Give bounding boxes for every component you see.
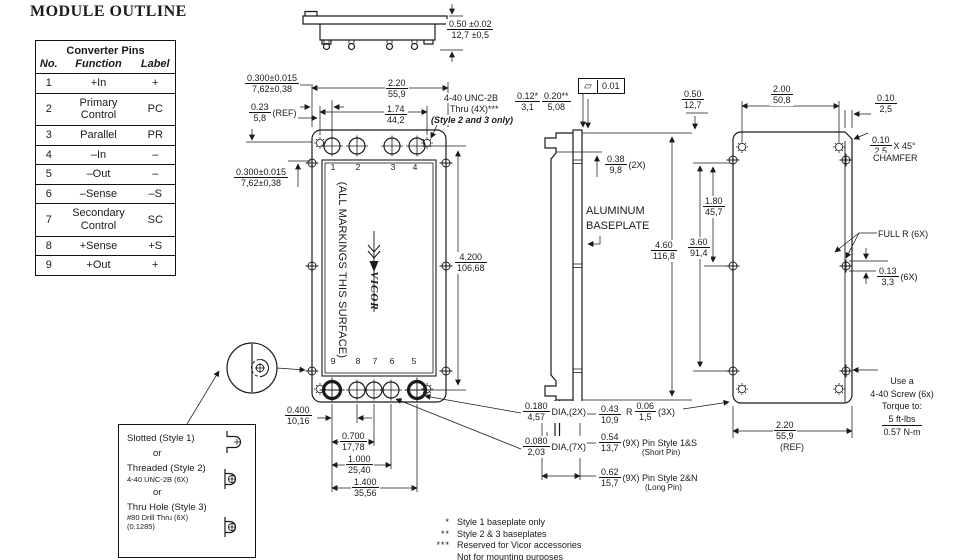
footnote: Not for mounting purposes <box>420 552 581 560</box>
dim-pin-dia-small: 0.0802,03DIA,(7X) <box>522 436 587 458</box>
module-outline-drawing: MODULE OUTLINE Converter Pins No. Functi… <box>0 0 962 560</box>
dim-pin-inset: 0.4310,9 <box>598 404 622 426</box>
short-pin-label: (Short Pin) <box>641 448 681 457</box>
pin-table-header-no: No. <box>36 58 62 74</box>
or-separator: or <box>153 487 255 499</box>
style1-label: Slotted (Style 1) <box>127 433 255 445</box>
dim-pin-spacing-3: 1.00025,40 <box>345 454 374 476</box>
pin-number-3: 3 <box>387 162 399 172</box>
dim-back-hole-span: 2.0050,8 <box>770 84 794 106</box>
pin-table-row: 1+In+ <box>36 74 176 94</box>
pin-table-row: 2Primary ControlPC <box>36 93 176 125</box>
converter-pins-table: Converter Pins No. Function Label 1+In+2… <box>35 40 176 276</box>
flatness-value: 0.01 <box>598 81 624 91</box>
full-radius-label: FULL R (6X) <box>877 229 929 239</box>
chamfer-label: CHAMFER <box>872 153 919 163</box>
style3-sublabel-2: (0.1285) <box>127 522 255 531</box>
dim-slot-span-2: 3.6091,4 <box>687 237 711 259</box>
pin-table-row: 8+Sense+S <box>36 236 176 256</box>
style2-sublabel: 4-40 UNC-2B (6X) <box>127 475 255 484</box>
pin-table-row: 6–Sense–S <box>36 184 176 204</box>
aluminum-baseplate-label-2: BASEPLATE <box>585 220 650 233</box>
torque-value: 5 ft-lbs 0.57 N-m <box>845 413 959 439</box>
front-view-dims <box>246 82 521 492</box>
pin-table-row: 7Secondary ControlSC <box>36 204 176 236</box>
dim-slot-offset: 0.133,3(6X) <box>876 266 919 288</box>
flatness-callout: ▱ 0.01 <box>578 78 625 94</box>
dim-standoff: 0.389,8(2X) <box>604 154 647 176</box>
pin-table-row: 9+Out+ <box>36 256 176 276</box>
mounting-styles-box: Slotted (Style 1) or Threaded (Style 2) … <box>118 424 256 558</box>
flatness-icon: ▱ <box>579 80 598 93</box>
dim-pin-spacing-1: 0.40010,16 <box>284 405 313 427</box>
dim-module-width: 2.2055,9 <box>385 78 409 100</box>
pin-number-2: 2 <box>352 162 364 172</box>
dim-pin-spacing-2: 0.70017,78 <box>339 431 368 453</box>
dim-slot-span-1: 1.8045,7 <box>702 196 726 218</box>
pin-number-7: 7 <box>369 356 381 366</box>
or-separator: or <box>153 448 255 460</box>
torque-line-3: Torque to: <box>845 400 959 413</box>
thread-note-3: (Style 2 and 3 only) <box>430 115 514 125</box>
pin-number-4: 4 <box>409 162 421 172</box>
thread-note-1: 4-40 UNC-2B <box>443 93 499 103</box>
pin-table-header-function: Function <box>62 58 136 74</box>
footnote: ***Reserved for Vicor accessories <box>420 540 581 552</box>
markings-surface-note: (ALL MARKINGS THIS SURFACE) <box>334 165 348 375</box>
long-pin-label: (Long Pin) <box>644 483 683 492</box>
pin-table-title: Converter Pins <box>36 41 176 59</box>
pin-table-row: 3ParallelPR <box>36 125 176 145</box>
torque-line-1: Use a <box>845 375 959 388</box>
dim-pin-edge-offset-left: 0.300±0.0157,62±0,38 <box>233 167 289 189</box>
footnotes: *Style 1 baseplate only**Style 2 & 3 bas… <box>420 517 581 560</box>
pin-number-8: 8 <box>352 356 364 366</box>
pin-number-9: 9 <box>327 356 339 366</box>
top-view <box>303 12 447 50</box>
dim-thread-depth-1: 0.12*3,1 <box>514 91 541 113</box>
dim-back-width-ref: 2.2055,9 <box>773 420 797 442</box>
pin-number-6: 6 <box>386 356 398 366</box>
dim-module-thickness: 0.50 ±0.0212,7 ±0,5 <box>446 19 494 41</box>
page-title: MODULE OUTLINE <box>30 3 187 21</box>
dim-mount-hole-span: 1.7444,2 <box>384 104 408 126</box>
dim-thread-depth-2: 0.20**5,08 <box>541 91 572 113</box>
torque-line-2: 4-40 Screw (6x) <box>845 388 959 401</box>
dim-pin-dia-large: 0.1804,57DIA,(2X) <box>522 401 587 423</box>
back-view <box>727 132 853 403</box>
thread-note-2: Thru (4X)*** <box>449 104 500 114</box>
ref-label: (REF) <box>779 442 805 452</box>
aluminum-baseplate-label-1: ALUMINUM <box>585 205 646 218</box>
footnote: **Style 2 & 3 baseplates <box>420 529 581 541</box>
pin-table-row: 5–Out– <box>36 165 176 185</box>
pin-number-5: 5 <box>408 356 420 366</box>
dim-back-top-offset: 0.5012,7 <box>681 89 705 111</box>
vicor-logo-text: VICOR <box>368 269 380 313</box>
pin-number-1: 1 <box>327 162 339 172</box>
style3-label: Thru Hole (Style 3) <box>127 502 255 514</box>
dim-edge-strip: 0.102,5 <box>874 93 898 115</box>
footnote: *Style 1 baseplate only <box>420 517 581 529</box>
dim-ref-offset: 0.235,8(REF) <box>248 102 298 124</box>
dim-pin-edge-offset-top: 0.300±0.0157,62±0,38 <box>244 73 300 95</box>
torque-note: Use a 4-40 Screw (6x) Torque to: 5 ft-lb… <box>845 375 959 439</box>
style3-sublabel-1: #80 Drill Thru (6X) <box>127 513 255 522</box>
pin-table-row: 4–In– <box>36 145 176 165</box>
dim-back-height: 4.60116,8 <box>650 240 678 262</box>
style2-label: Threaded (Style 2) <box>127 463 255 475</box>
pin-table-header-label: Label <box>136 58 176 74</box>
dim-module-length: 4.200106,68 <box>454 252 488 274</box>
dim-corner-radius: R0.061,5(3X) <box>625 401 676 423</box>
slot-detail-balloon <box>227 343 277 393</box>
dim-pin-spacing-4: 1.40035,56 <box>351 477 380 499</box>
